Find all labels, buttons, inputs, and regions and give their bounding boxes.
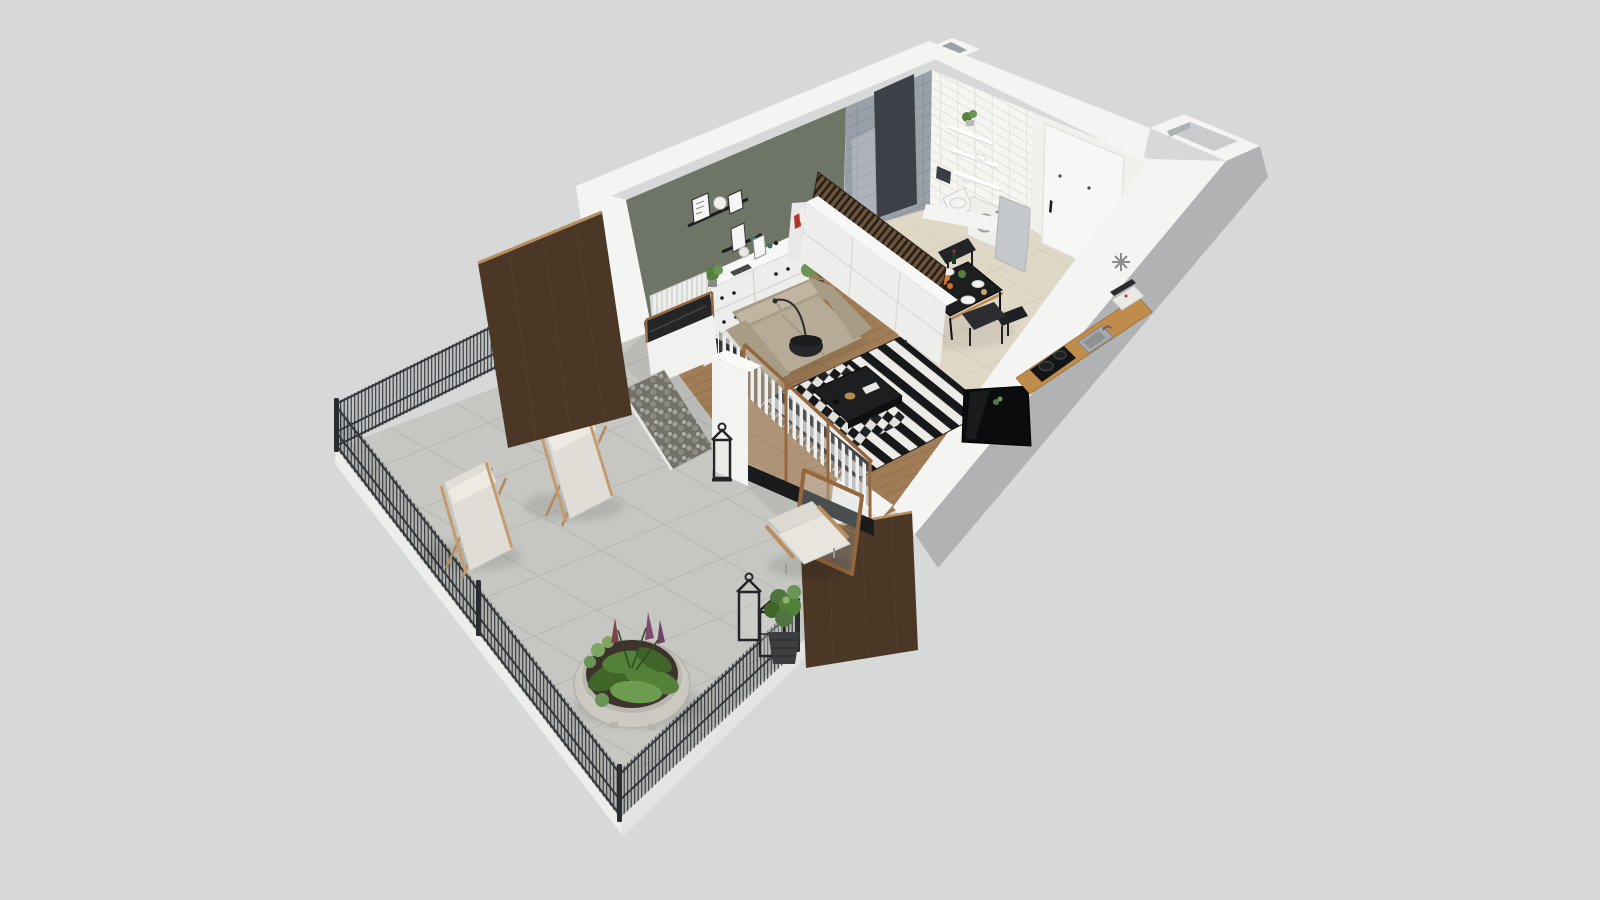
gold-bowl (845, 393, 856, 400)
round-plate (739, 247, 749, 257)
fence-post (617, 764, 622, 822)
door-peephole (1058, 174, 1061, 177)
bottle-cap (953, 250, 956, 253)
fern (595, 693, 609, 707)
knob (720, 296, 724, 300)
teal-cup (768, 244, 773, 249)
floorplan-3d-render (0, 0, 1600, 900)
burner (1039, 362, 1053, 371)
tv-panel (962, 386, 1031, 446)
plate (972, 281, 984, 288)
orange-fruit (947, 283, 953, 289)
lantern-body (714, 440, 730, 478)
black-ornament (774, 241, 778, 245)
round-plate (714, 197, 727, 210)
floorplan-render-stage (0, 0, 1600, 900)
white-book (799, 208, 805, 222)
knob (786, 267, 790, 271)
lamp-base (773, 299, 778, 304)
bathroom-door (995, 196, 1031, 272)
planter-foot (610, 722, 618, 728)
fern (584, 656, 596, 668)
shower-column-dark (874, 74, 917, 218)
fence-post (334, 398, 339, 452)
knob (732, 291, 736, 295)
photo-frame (753, 235, 766, 259)
door-spot (1087, 186, 1090, 189)
lamp-shade-top (790, 335, 822, 347)
coffee-machine-light (1125, 295, 1128, 298)
shelf-plant (969, 110, 977, 118)
knob (774, 272, 778, 276)
planter-foot (648, 724, 656, 730)
burner (1054, 351, 1066, 359)
potted-plant (713, 265, 723, 275)
jar (981, 289, 987, 295)
bush-highlight (783, 597, 790, 604)
washer-dial (996, 211, 999, 214)
bush-foliage (775, 609, 793, 627)
herb-bunch (958, 270, 966, 278)
lantern-body (739, 592, 759, 640)
plate (961, 296, 975, 304)
plant-pot (966, 120, 974, 126)
fence-post (476, 580, 481, 636)
bush-foliage (787, 585, 801, 599)
table-ornament (833, 399, 839, 405)
plant-pot (708, 280, 717, 287)
floor-sprout (998, 397, 1003, 402)
bottle (952, 252, 956, 264)
knob (722, 320, 726, 324)
